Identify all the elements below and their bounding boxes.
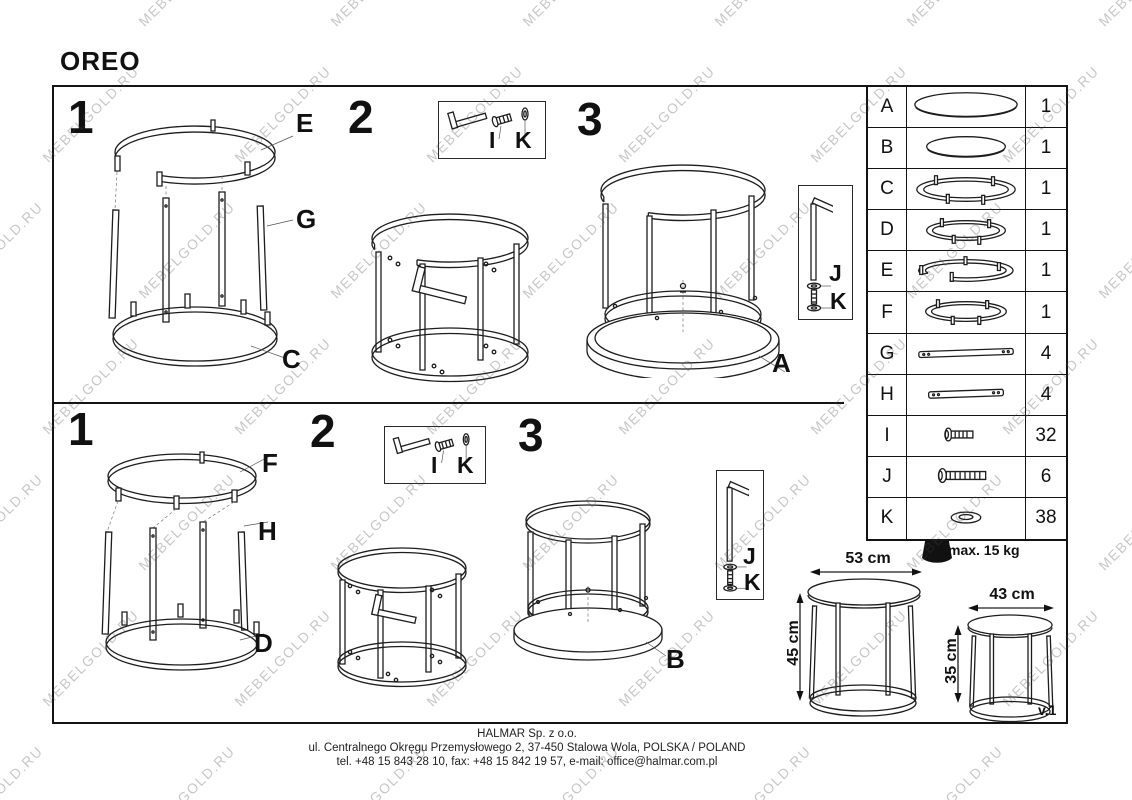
parts-table-qty: 4 [1026, 334, 1066, 375]
manufacturer-name: HALMAR Sp. z o.o. [227, 727, 827, 741]
hardware-label-k: K [515, 129, 532, 152]
watermark-text: MEBELGOLD.RU [1095, 199, 1132, 302]
part-label-b: B [666, 646, 685, 672]
parts-table: A 1 B 1 C 1 D 1 E 1 F 1 [866, 85, 1068, 541]
watermark-text: MEBELGOLD.RU [1095, 0, 1132, 29]
watermark-text: MEBELGOLD.RU [135, 743, 238, 800]
parts-table-qty: 1 [1026, 210, 1066, 251]
parts-table-qty: 1 [1026, 292, 1066, 333]
parts-table-qty: 1 [1026, 169, 1066, 210]
part-drawing-ring-medium [907, 210, 1026, 251]
hardware-label-i: I [489, 129, 495, 152]
hardware-inset-box: I K [384, 426, 486, 484]
step-row2-1: 1 F H D [60, 402, 325, 707]
watermark-text: MEBELGOLD.RU [1095, 743, 1132, 800]
step-row1-3: 3 A [565, 88, 865, 393]
hardware-label-k: K [830, 290, 847, 313]
hardware-label-i: I [431, 454, 437, 477]
step-number: 3 [577, 96, 603, 142]
version-label: v.1 [1038, 702, 1056, 718]
parts-table-qty: 32 [1026, 416, 1066, 457]
watermark-text: MEBELGOLD.RU [0, 0, 46, 29]
parts-table-letter: H [868, 375, 907, 416]
parts-table-letter: C [868, 169, 907, 210]
watermark-text: MEBELGOLD.RU [903, 743, 1006, 800]
step-row1-2: 2 I K [340, 88, 555, 393]
watermark-text: MEBELGOLD.RU [1095, 471, 1132, 574]
hardware-inset-box-vertical: J K [798, 185, 853, 320]
step-number: 2 [310, 408, 336, 454]
hardware-label-j: J [743, 545, 756, 568]
assembled-frame-diagram-small [322, 538, 482, 690]
watermark-text: MEBELGOLD.RU [0, 199, 46, 302]
parts-table-letter: J [868, 457, 907, 498]
dimensions-area: max. 15 kg 53 cm 45 cm 43 cm 35 cm [780, 520, 1068, 724]
small-width-label: 43 cm [968, 586, 1056, 604]
part-drawing-ring-large [907, 169, 1026, 210]
watermark-text: MEBELGOLD.RU [519, 0, 622, 29]
part-drawing-ring-small [907, 292, 1026, 333]
watermark-text: MEBELGOLD.RU [327, 0, 430, 29]
part-label-h: H [258, 518, 277, 544]
part-label-g: G [296, 206, 316, 232]
large-height-label: 45 cm [785, 613, 803, 673]
frame-on-bottom-disc-diagram [510, 490, 670, 668]
part-drawing-open-ring [907, 251, 1026, 292]
watermark-text: MEBELGOLD.RU [711, 0, 814, 29]
small-height-label: 35 cm [943, 631, 961, 691]
parts-table-letter: F [868, 292, 907, 333]
parts-table-qty: 4 [1026, 375, 1066, 416]
parts-table-letter: D [868, 210, 907, 251]
parts-table-letter: K [868, 498, 907, 539]
max-load-label: max. 15 kg [948, 542, 1020, 558]
parts-table-qty: 1 [1026, 251, 1066, 292]
hardware-label-k: K [457, 454, 474, 477]
parts-table-qty: 38 [1026, 498, 1066, 539]
product-title: OREO [60, 46, 141, 77]
large-width-label: 53 cm [818, 550, 918, 568]
manufacturer-contact: tel. +48 15 843 28 10, fax: +48 15 842 1… [227, 755, 827, 769]
part-drawing-screw-long [907, 457, 1026, 498]
part-label-c: C [282, 346, 301, 372]
parts-table-letter: B [868, 128, 907, 169]
part-drawing-bar-long [907, 334, 1026, 375]
manufacturer-address: ul. Centralnego Okręgu Przemysłowego 2, … [227, 741, 827, 755]
parts-table-qty: 6 [1026, 457, 1066, 498]
part-drawing-washer [907, 498, 1026, 539]
parts-table-letter: E [868, 251, 907, 292]
part-label-a: A [772, 350, 791, 376]
watermark-text: MEBELGOLD.RU [903, 0, 1006, 29]
instruction-sheet: MEBELGOLD.RUMEBELGOLD.RUMEBELGOLD.RUMEBE… [0, 0, 1132, 800]
part-label-f: F [262, 450, 278, 476]
part-drawing-screw-short [907, 416, 1026, 457]
watermark-text: MEBELGOLD.RU [0, 743, 46, 800]
parts-table-qty: 1 [1026, 87, 1066, 128]
step-row1-1: 1 E [60, 88, 325, 393]
hardware-label-j: J [829, 262, 842, 285]
part-label-d: D [254, 630, 273, 656]
exploded-frame-diagram-large [95, 106, 295, 374]
exploded-frame-diagram-small [90, 444, 275, 679]
part-drawing-disc-large [907, 87, 1026, 128]
hardware-inset-box: I K [438, 101, 546, 159]
frame-on-top-disc-diagram [583, 150, 788, 378]
assembled-frame-diagram-large [354, 200, 546, 386]
step-number: 2 [348, 94, 374, 140]
step-row2-2: 2 I K [300, 402, 512, 707]
parts-table-letter: A [868, 87, 907, 128]
part-label-e: E [296, 110, 313, 136]
step-number: 1 [68, 94, 94, 140]
step-row2-3: 3 B [508, 402, 783, 707]
step-number: 3 [518, 412, 544, 458]
parts-table-letter: I [868, 416, 907, 457]
manufacturer-footer: HALMAR Sp. z o.o. ul. Centralnego Okręgu… [227, 727, 827, 769]
hardware-inset-box-vertical: J K [716, 470, 764, 600]
parts-table-letter: G [868, 334, 907, 375]
parts-table-qty: 1 [1026, 128, 1066, 169]
watermark-text: MEBELGOLD.RU [135, 0, 238, 29]
part-drawing-bar-short [907, 375, 1026, 416]
allen-key-screw-washer-vertical-icon [803, 190, 833, 316]
hardware-label-k: K [744, 571, 761, 594]
watermark-text: MEBELGOLD.RU [0, 471, 46, 574]
part-drawing-disc-small [907, 128, 1026, 169]
